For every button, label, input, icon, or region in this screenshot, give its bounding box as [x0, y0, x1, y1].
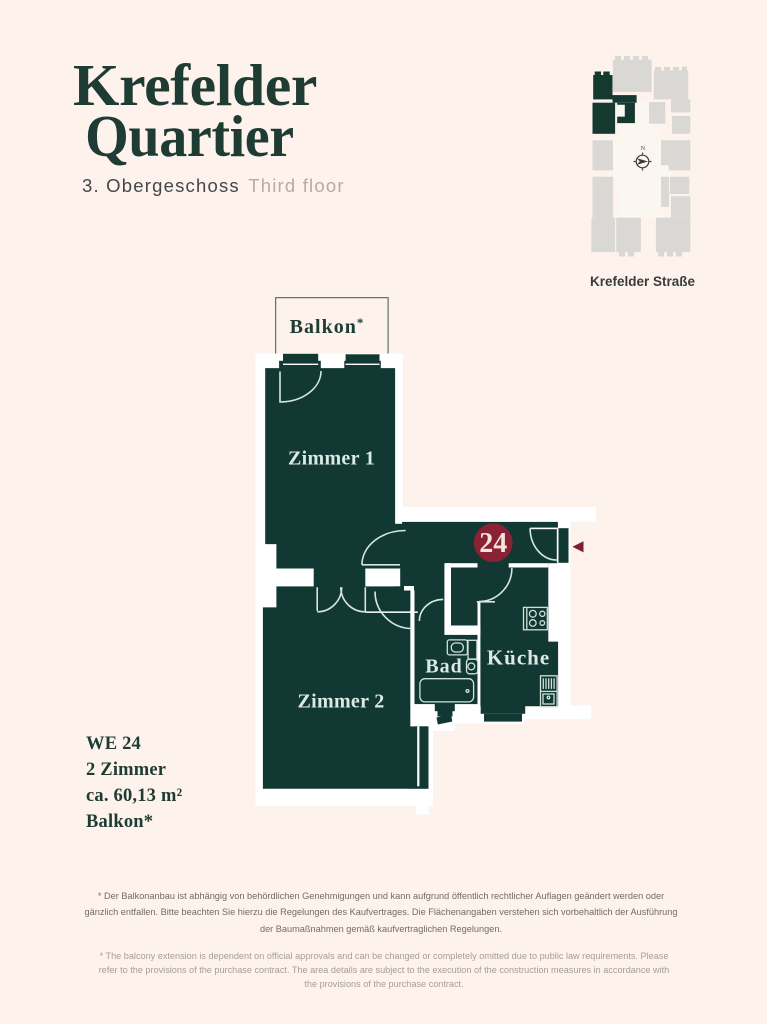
- svg-text:24: 24: [479, 528, 507, 559]
- svg-text:Balkon*: Balkon*: [290, 315, 365, 338]
- svg-text:Zimmer 2: Zimmer 2: [297, 691, 384, 713]
- svg-text:N: N: [640, 145, 645, 152]
- svg-text:Zimmer 1: Zimmer 1: [288, 448, 375, 470]
- svg-text:Küche: Küche: [487, 646, 550, 670]
- svg-text:Bad: Bad: [425, 656, 462, 678]
